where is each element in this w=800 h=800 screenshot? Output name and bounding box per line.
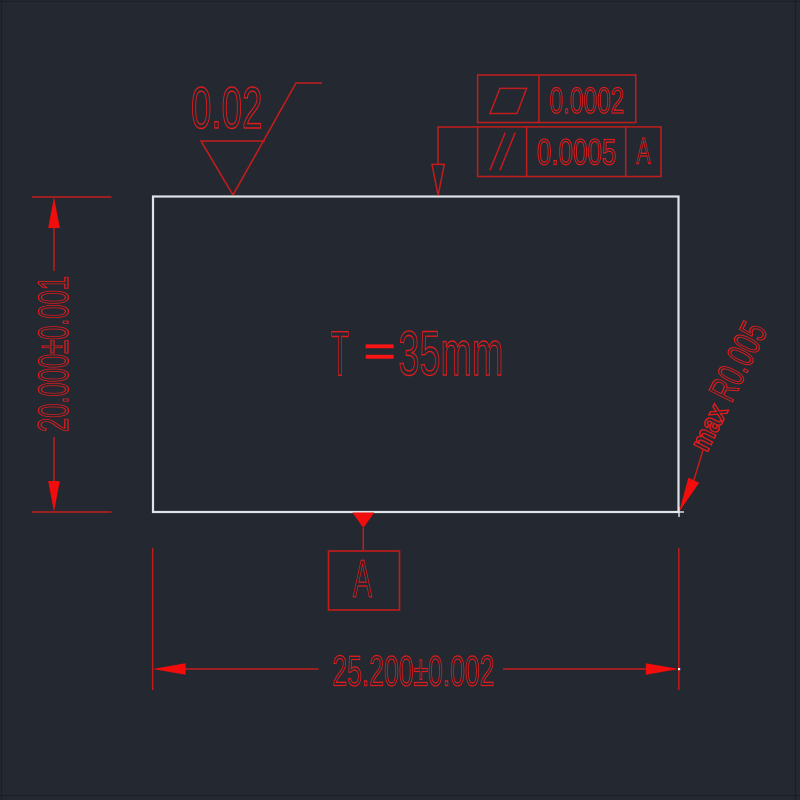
- svg-text:A: A: [353, 550, 372, 609]
- svg-text:T: T: [331, 319, 349, 389]
- svg-text:35mm: 35mm: [399, 319, 504, 389]
- svg-text:20.000±0.001: 20.000±0.001: [30, 276, 78, 432]
- svg-text:25.200±0.002: 25.200±0.002: [333, 648, 495, 696]
- svg-text:0.0005: 0.0005: [537, 131, 617, 172]
- svg-text:A: A: [637, 131, 651, 172]
- svg-text:0.0002: 0.0002: [550, 80, 625, 121]
- svg-text:0.02: 0.02: [191, 76, 263, 141]
